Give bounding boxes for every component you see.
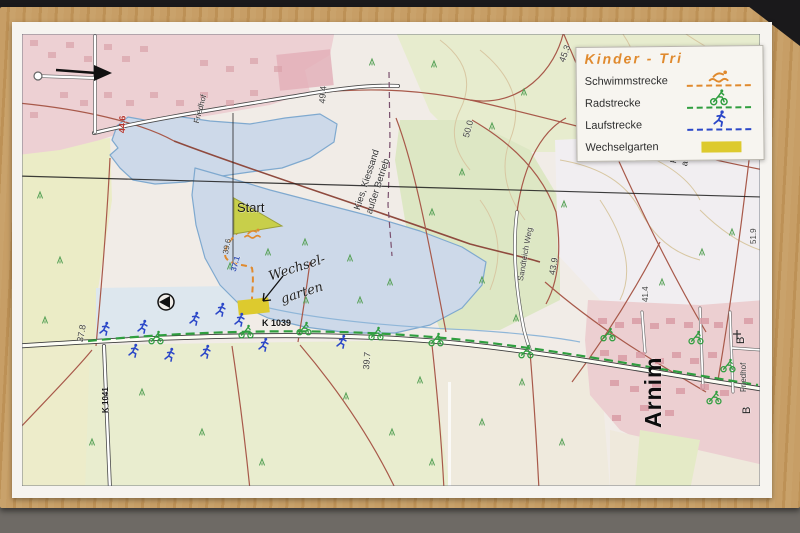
legend-row-bike: Radstrecke: [585, 88, 755, 110]
swim-dash-sample: [687, 84, 751, 87]
legend-label-run: Laufstrecke: [585, 119, 642, 132]
run-dash-sample: [687, 128, 751, 131]
transition-swatch: [701, 141, 741, 152]
legend-label-bike: Radstrecke: [585, 97, 641, 110]
legend-row-run: Laufstrecke: [585, 110, 755, 132]
swimmer-icon: [708, 67, 730, 83]
legend-row-transition: Wechselgarten: [585, 132, 755, 154]
sheet-seam: [448, 382, 451, 486]
legend-label-swim: Schwimmstrecke: [585, 75, 668, 88]
legend-title: Kinder - Tri: [584, 49, 754, 66]
legend-label-transition: Wechselgarten: [585, 141, 658, 154]
runner-icon: [710, 109, 728, 127]
viewpoint-symbol-icon: [158, 294, 174, 310]
legend-panel: Kinder - Tri Schwimmstrecke Radstrecke L…: [575, 45, 764, 162]
cyclist-icon: [709, 88, 729, 105]
legend-row-swim: Schwimmstrecke: [585, 66, 755, 88]
photo-of-triathlon-course-map: Start Wechsel- garten Kies, Kiessand auß…: [0, 0, 800, 533]
